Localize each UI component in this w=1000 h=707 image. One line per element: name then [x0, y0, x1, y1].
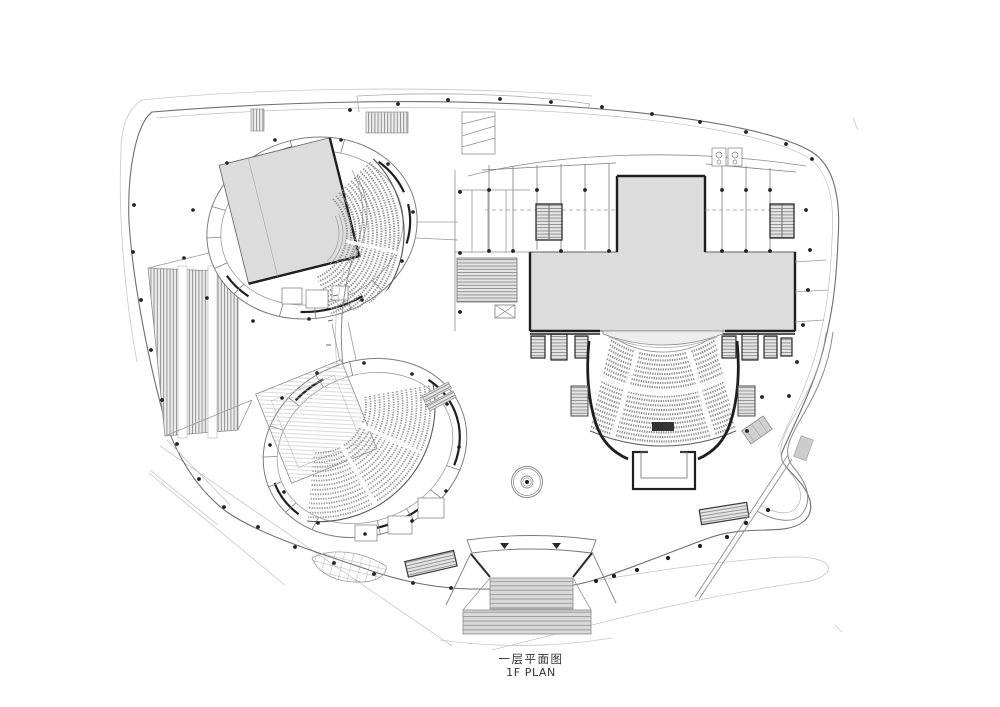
grand-entry-staircase	[446, 536, 616, 635]
control-desk	[652, 422, 674, 431]
entry-vestibule	[633, 452, 695, 489]
service-ramp	[455, 170, 517, 331]
floor-plan-page: 一层平面图 1F PLAN	[0, 0, 1000, 707]
floor-plan-drawing	[0, 0, 1000, 707]
plaza-bench-west	[405, 550, 457, 577]
switchback-ramp	[462, 112, 495, 154]
plan-caption-en: 1F PLAN	[431, 666, 631, 679]
plan-caption-zh: 一层平面图	[431, 653, 631, 666]
information-desk	[512, 467, 543, 498]
plan-caption: 一层平面图 1F PLAN	[431, 653, 631, 679]
main-stage-house	[530, 176, 795, 331]
roof-stair-hatch	[251, 109, 408, 133]
planter	[312, 552, 386, 582]
plaza-bench-east	[699, 502, 749, 524]
orchestra-pit	[603, 331, 723, 345]
south-ramp	[695, 332, 833, 599]
